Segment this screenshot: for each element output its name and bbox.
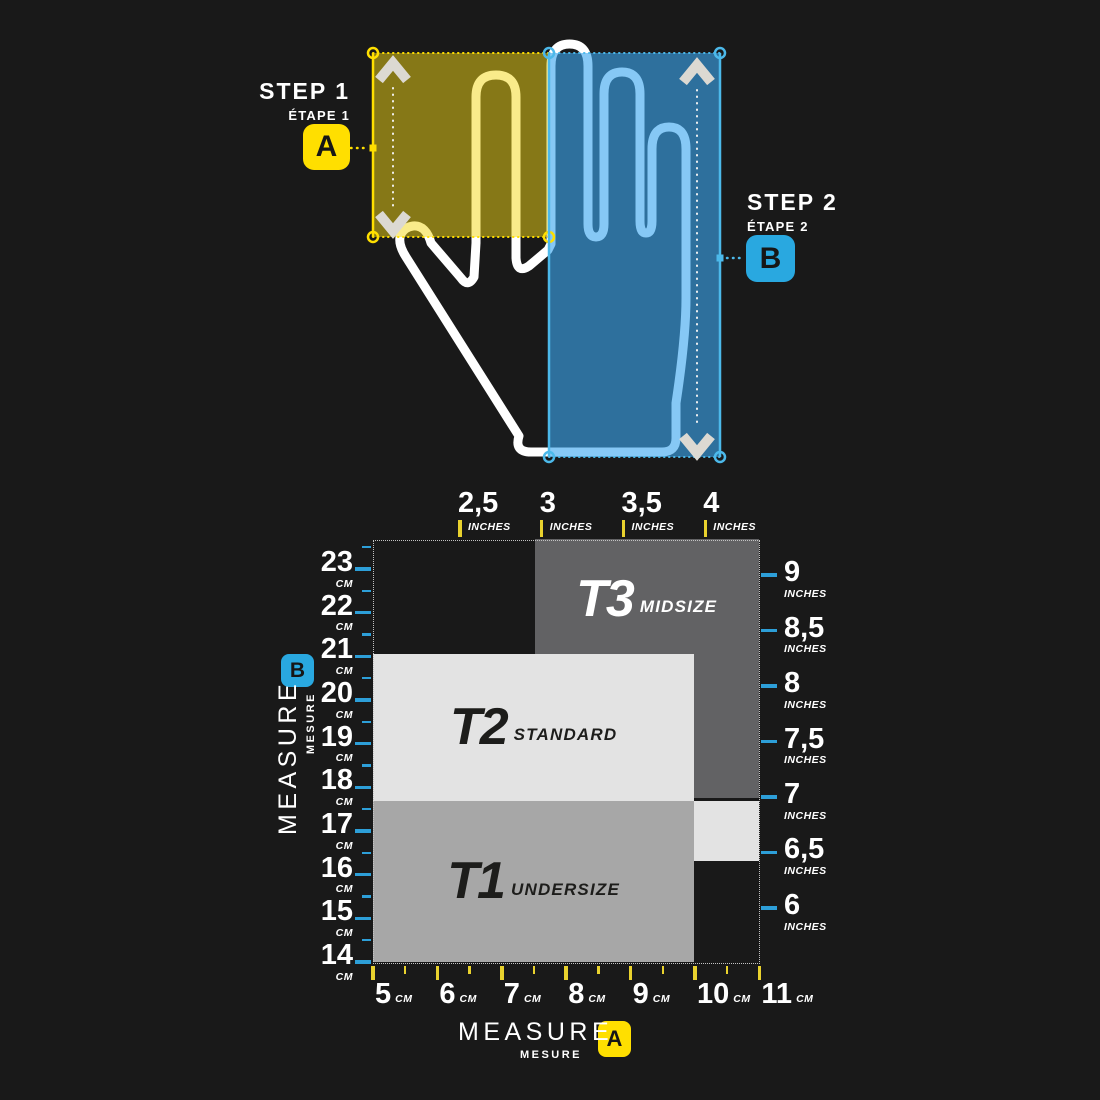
right-axis-tick — [761, 906, 777, 910]
top-axis-value: 2,5 — [458, 491, 498, 516]
left-axis-minor-tick — [362, 546, 371, 549]
right-axis-value: 7 — [784, 782, 854, 807]
bottom-axis-label: 7CM — [504, 982, 541, 1007]
top-axis-unit-label: INCHES — [713, 518, 756, 533]
top-axis-label: 3 — [540, 491, 556, 516]
right-axis-tick — [761, 573, 777, 577]
right-axis-tick — [761, 684, 777, 688]
bottom-axis-unit: CM — [460, 994, 477, 1005]
left-axis-minor-tick — [362, 895, 371, 898]
measure-b-badge: B — [746, 235, 795, 282]
bottom-axis-minor-tick — [468, 966, 471, 974]
bottom-axis-label: 8CM — [568, 982, 605, 1007]
glove-size-guide-infographic: STEP 1 ÉTAPE 1 A STEP 2 ÉTAPE 2 B T3MIDS… — [0, 0, 1100, 1100]
top-axis-tick — [704, 520, 708, 537]
top-axis-label: 3,5 — [622, 491, 662, 516]
left-axis-tick — [355, 698, 371, 702]
right-axis-value: 8,5 — [784, 616, 854, 641]
step2-subtitle: ÉTAPE 2 — [747, 219, 867, 234]
bottom-axis-label: 9CM — [633, 982, 670, 1007]
step2-title: STEP 2 — [747, 191, 867, 214]
measure-b-axis-caption: MEASURE MESURE — [276, 692, 317, 835]
left-axis-unit: CM — [291, 579, 353, 590]
left-axis-label: 23CM — [291, 550, 353, 589]
right-axis-label: 8,5INCHES — [784, 616, 854, 655]
top-axis-tick — [458, 520, 462, 537]
left-axis-tick — [355, 611, 371, 615]
zone-name-text: STANDARD — [514, 725, 618, 749]
left-axis-unit: CM — [291, 928, 353, 939]
right-axis-unit: INCHES — [784, 589, 854, 600]
size-zone-T2: T2STANDARD — [373, 654, 694, 801]
arrow-down-icon — [379, 214, 407, 231]
right-axis-label: 6,5INCHES — [784, 837, 854, 876]
bottom-axis-label: 6CM — [439, 982, 476, 1007]
left-axis-minor-tick — [362, 808, 371, 811]
left-axis-label: 16CM — [291, 856, 353, 895]
left-axis-value: 21 — [291, 637, 353, 662]
left-axis-value: 16 — [291, 856, 353, 881]
left-axis-value: 22 — [291, 594, 353, 619]
left-axis-minor-tick — [362, 939, 371, 942]
bottom-axis-value: 7 — [504, 982, 520, 1007]
top-axis-unit-label: INCHES — [550, 518, 593, 533]
bottom-axis-unit: CM — [733, 994, 750, 1005]
left-axis-tick — [355, 873, 371, 877]
top-axis-value: 4 — [703, 491, 719, 516]
top-axis-unit-label: INCHES — [468, 518, 511, 533]
top-axis-unit: INCHES — [713, 522, 756, 533]
measure-b-overlay — [549, 53, 720, 457]
bottom-axis-unit: CM — [524, 994, 541, 1005]
left-axis-value: 15 — [291, 899, 353, 924]
bottom-axis-label: 11CM — [761, 982, 813, 1007]
zone-id-text: T3 — [576, 577, 633, 621]
left-axis-tick — [355, 960, 371, 964]
top-axis-unit: INCHES — [632, 522, 675, 533]
left-axis-minor-tick — [362, 677, 371, 680]
measure-a-overlay — [373, 53, 549, 237]
bottom-axis-value: 8 — [568, 982, 584, 1007]
left-axis-tick — [355, 742, 371, 746]
left-axis-minor-tick — [362, 721, 371, 724]
left-axis-tick — [355, 829, 371, 833]
measure-a-axis-caption: MEASURE MESURE — [458, 1020, 582, 1061]
right-axis-value: 8 — [784, 671, 854, 696]
left-axis-tick — [355, 917, 371, 921]
bottom-axis-unit: CM — [653, 994, 670, 1005]
right-axis-label: 6INCHES — [784, 893, 854, 932]
measure-b-title: MEASURE — [276, 692, 301, 835]
left-axis-label: 21CM — [291, 637, 353, 676]
top-axis-tick — [622, 520, 626, 537]
right-axis-unit: INCHES — [784, 755, 854, 766]
right-axis-unit: INCHES — [784, 700, 854, 711]
step1-caption: STEP 1 ÉTAPE 1 — [240, 80, 350, 123]
bottom-axis-value: 10 — [697, 982, 729, 1007]
top-axis-value: 3,5 — [622, 491, 662, 516]
bottom-axis-minor-tick — [597, 966, 600, 974]
bottom-axis-label: 5CM — [375, 982, 412, 1007]
right-axis-unit: INCHES — [784, 922, 854, 933]
arrow-up-icon — [379, 63, 407, 80]
bottom-axis-unit: CM — [395, 994, 412, 1005]
right-axis-tick — [761, 795, 777, 799]
left-axis-minor-tick — [362, 633, 371, 636]
bottom-axis-value: 5 — [375, 982, 391, 1007]
bottom-axis-value: 11 — [761, 982, 792, 1007]
top-axis-label: 4 — [703, 491, 719, 516]
right-axis-value: 6,5 — [784, 837, 854, 862]
left-axis-unit: CM — [291, 622, 353, 633]
left-axis-minor-tick — [362, 764, 371, 767]
top-axis-label: 2,5 — [458, 491, 498, 516]
step1-subtitle: ÉTAPE 1 — [240, 108, 350, 123]
right-axis-tick — [761, 629, 777, 633]
left-axis-unit: CM — [291, 666, 353, 677]
bottom-axis-label: 10CM — [697, 982, 751, 1007]
right-axis-label: 9INCHES — [784, 560, 854, 599]
right-axis-label: 7,5INCHES — [784, 727, 854, 766]
left-axis-tick — [355, 567, 371, 571]
bottom-axis-value: 6 — [439, 982, 455, 1007]
measure-b-frame — [544, 48, 743, 462]
right-axis-label: 8INCHES — [784, 671, 854, 710]
right-axis-unit: INCHES — [784, 811, 854, 822]
bottom-axis-tick — [629, 966, 633, 980]
arrow-up-icon — [683, 65, 711, 82]
measure-a-arrows — [379, 63, 407, 231]
bottom-axis-minor-tick — [533, 966, 536, 974]
step1-title: STEP 1 — [240, 80, 350, 103]
zone-label-T2: T2STANDARD — [450, 705, 617, 749]
right-axis-value: 9 — [784, 560, 854, 585]
right-axis-tick — [761, 740, 777, 744]
zone-label-T1: T1UNDERSIZE — [447, 859, 620, 903]
measure-a-title: MEASURE — [458, 1020, 582, 1045]
right-axis-label: 7INCHES — [784, 782, 854, 821]
right-axis-unit: INCHES — [784, 644, 854, 655]
left-axis-unit: CM — [291, 972, 353, 983]
top-axis-unit-label: INCHES — [632, 518, 675, 533]
measure-a-frame — [351, 48, 554, 242]
size-zone-T1: T1UNDERSIZE — [373, 801, 694, 962]
left-axis-tick — [355, 786, 371, 790]
left-axis-label: 15CM — [291, 899, 353, 938]
zone-name-text: MIDSIZE — [640, 597, 717, 621]
bottom-axis-minor-tick — [726, 966, 729, 974]
bottom-axis-minor-tick — [404, 966, 407, 974]
left-axis-label: 22CM — [291, 594, 353, 633]
arrow-down-icon — [683, 436, 711, 453]
zone-id-text: T1 — [447, 859, 504, 903]
zone-name-text: UNDERSIZE — [511, 880, 620, 904]
measure-b-subtitle: MESURE — [305, 692, 317, 835]
top-axis-tick — [540, 520, 544, 537]
top-axis-unit: INCHES — [468, 522, 511, 533]
step2-caption: STEP 2 ÉTAPE 2 — [747, 191, 867, 234]
right-axis-value: 7,5 — [784, 727, 854, 752]
left-axis-label: 14CM — [291, 943, 353, 982]
right-axis-unit: INCHES — [784, 866, 854, 877]
measure-b-arrows — [683, 65, 711, 453]
hand-outline — [400, 44, 686, 452]
right-axis-tick — [761, 851, 777, 855]
left-axis-unit: CM — [291, 841, 353, 852]
top-axis-unit: INCHES — [550, 522, 593, 533]
bottom-axis-value: 9 — [633, 982, 649, 1007]
zone-id-text: T2 — [450, 705, 507, 749]
measure-a-subtitle: MESURE — [458, 1049, 582, 1061]
measure-a-badge: A — [303, 124, 350, 170]
left-axis-value: 23 — [291, 550, 353, 575]
right-axis-value: 6 — [784, 893, 854, 918]
left-axis-minor-tick — [362, 852, 371, 855]
size-zone-overlap — [694, 801, 758, 861]
left-axis-value: 14 — [291, 943, 353, 968]
left-axis-unit: CM — [291, 884, 353, 895]
top-axis-value: 3 — [540, 491, 556, 516]
zone-label-T3: T3MIDSIZE — [576, 577, 717, 621]
bottom-axis-unit: CM — [588, 994, 605, 1005]
left-axis-minor-tick — [362, 590, 371, 593]
bottom-axis-unit: CM — [796, 994, 813, 1005]
left-axis-tick — [355, 655, 371, 659]
bottom-axis-minor-tick — [662, 966, 665, 974]
